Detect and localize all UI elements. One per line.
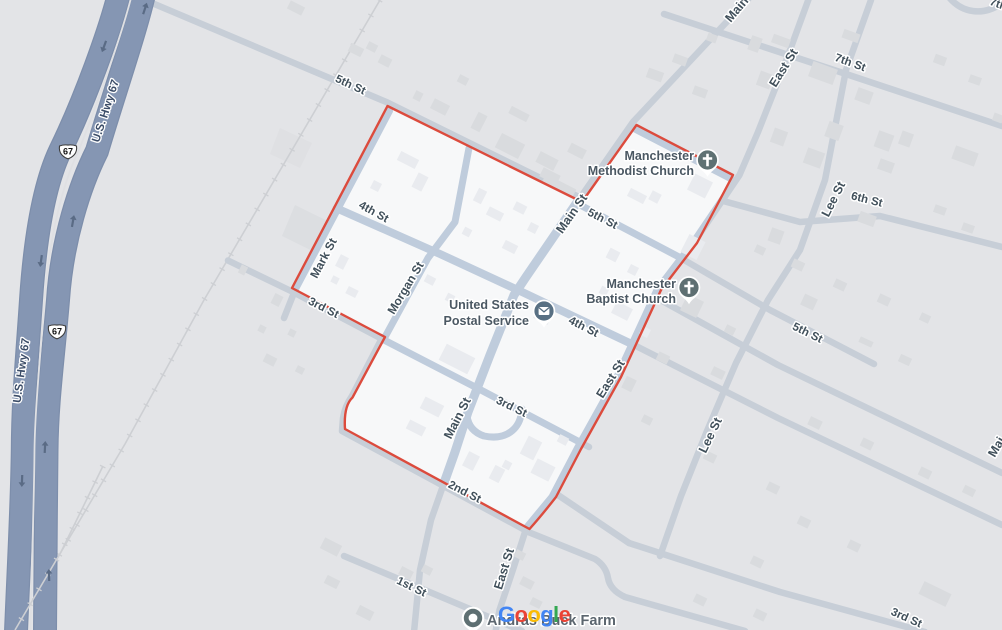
svg-text:Postal Service: Postal Service bbox=[444, 314, 530, 328]
svg-text:Methodist Church: Methodist Church bbox=[588, 164, 694, 178]
svg-text:Manchester: Manchester bbox=[607, 277, 677, 291]
svg-text:Baptist Church: Baptist Church bbox=[586, 292, 676, 306]
svg-text:67: 67 bbox=[63, 147, 73, 157]
svg-text:United States: United States bbox=[449, 298, 529, 312]
svg-text:Google: Google bbox=[498, 602, 571, 627]
svg-text:67: 67 bbox=[52, 327, 62, 337]
svg-text:Manchester: Manchester bbox=[625, 149, 695, 163]
